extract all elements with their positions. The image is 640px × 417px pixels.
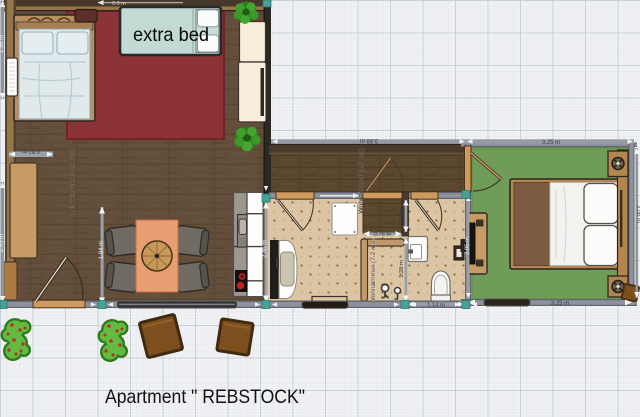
svg-text:1.28 m: 1.28 m	[399, 260, 405, 278]
svg-text:3.25 m: 3.25 m	[542, 140, 560, 146]
svg-text:0.87 m: 0.87 m	[22, 148, 40, 154]
svg-text:3.89 m: 3.89 m	[360, 137, 378, 143]
svg-text:2.46 m: 2.46 m	[263, 240, 269, 258]
svg-text:Wohnzimmer (4.3 m2): Wohnzimmer (4.3 m2)	[358, 148, 365, 213]
svg-text:2.05 m: 2.05 m	[465, 237, 471, 255]
svg-text:Apartment " REBSTOCK": Apartment " REBSTOCK"	[105, 386, 305, 408]
svg-text:3.06 m: 3.06 m	[635, 205, 640, 223]
svg-text:3.25 m: 3.25 m	[551, 301, 569, 307]
svg-text:0.64 m: 0.64 m	[399, 207, 405, 225]
svg-text:0.9 m: 0.9 m	[112, 1, 126, 7]
svg-text:1.96 m: 1.96 m	[0, 35, 5, 53]
svg-text:extra bed: extra bed	[133, 24, 209, 46]
svg-text:Wohnzimmer (30.9 m2): Wohnzimmer (30.9 m2)	[69, 149, 76, 218]
svg-text:Wohnzimmer (7.2 m2): Wohnzimmer (7.2 m2)	[370, 238, 377, 303]
svg-text:2.45 m: 2.45 m	[0, 234, 5, 252]
svg-text:1.14 m: 1.14 m	[427, 303, 445, 309]
svg-text:1.84 m: 1.84 m	[99, 241, 105, 259]
svg-text:0.76 m: 0.76 m	[374, 232, 392, 238]
